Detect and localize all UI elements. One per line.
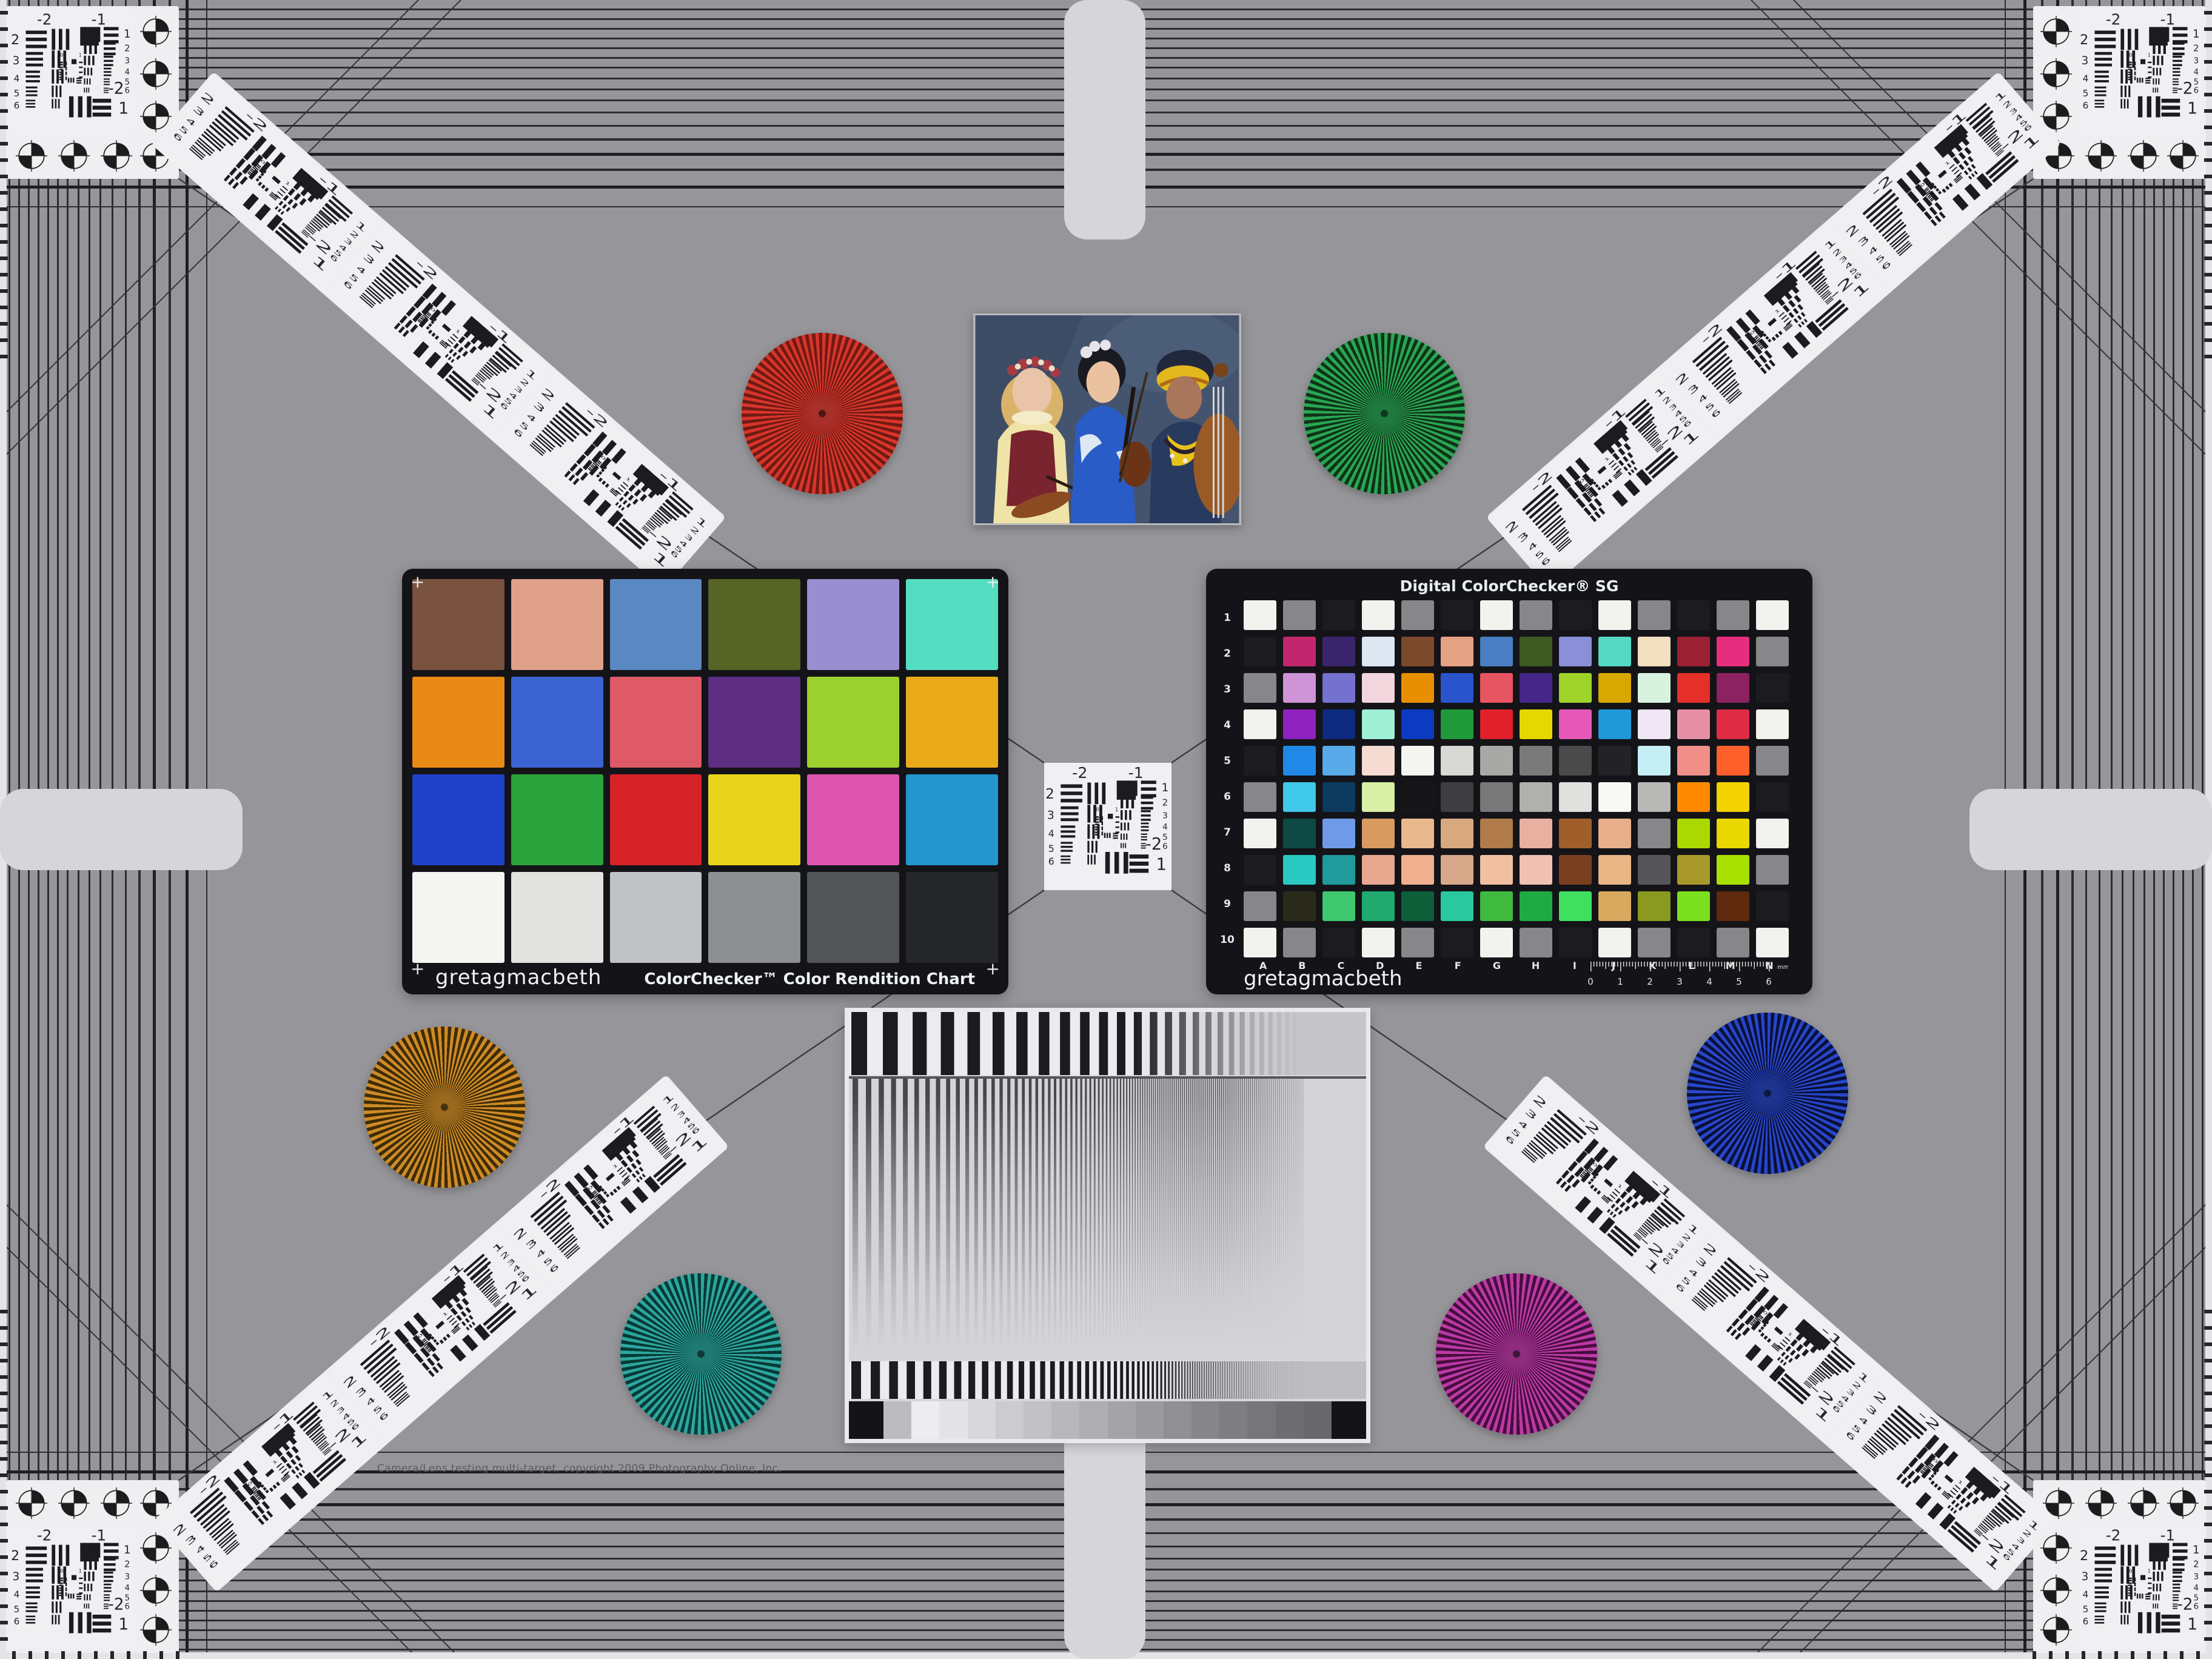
center-usaf-chart [1044, 763, 1171, 890]
sg-patch [1559, 637, 1592, 666]
sg-patch [1441, 746, 1473, 776]
sg-patch [1362, 928, 1395, 957]
sg-patch [1480, 709, 1513, 739]
sg-ruler-number: 1 [1617, 976, 1623, 987]
sg-patch [1638, 709, 1671, 739]
sg-patch [1756, 855, 1789, 885]
sg-patch [1559, 600, 1592, 630]
sg-patch [1559, 746, 1592, 776]
sg-patch [1441, 855, 1473, 885]
sg-patch [1677, 746, 1710, 776]
sg-patch [1638, 673, 1671, 703]
sg-patch [1638, 891, 1671, 921]
sg-patch [1638, 600, 1671, 630]
frequency-sweep-panel [845, 1008, 1370, 1443]
corner-fiducial-cluster [2033, 1480, 2206, 1653]
sg-patch [1717, 709, 1749, 739]
corner-plus-mark: + [986, 960, 1000, 977]
sg-patch [1244, 819, 1276, 848]
sg-column-label: E [1399, 960, 1438, 971]
gray-step [849, 1401, 883, 1439]
sg-patch [1717, 891, 1749, 921]
corner-fiducial-cluster [2033, 6, 2206, 179]
sg-patch [1322, 673, 1355, 703]
sg-patch [1480, 819, 1513, 848]
sg-patch [1717, 782, 1749, 812]
sg-patch [1677, 637, 1710, 666]
sg-patch [1520, 746, 1552, 776]
sg-patch [1480, 673, 1513, 703]
sg-patch [1283, 855, 1316, 885]
sg-patch [1638, 928, 1671, 957]
sg-patch [1598, 819, 1631, 848]
cc-patch [807, 774, 899, 865]
sg-patch [1598, 782, 1631, 812]
colorchecker-classic-panel: gretagmacbeth ColorChecker™ Color Rendit… [402, 569, 1008, 994]
sg-ruler-number: 0 [1588, 976, 1594, 987]
sg-patch [1717, 746, 1749, 776]
sg-patch [1559, 891, 1592, 921]
sg-patch [1322, 891, 1355, 921]
cc-patch [610, 579, 702, 670]
sg-patch [1677, 928, 1710, 957]
edge-marker-bottom [1064, 1419, 1145, 1659]
sg-patch [1677, 600, 1710, 630]
sg-patch [1638, 746, 1671, 776]
sg-column-label: H [1517, 960, 1555, 971]
sg-patch [1401, 709, 1434, 739]
edge-marker-left [0, 789, 243, 870]
cc-patch [511, 677, 603, 768]
cc-patch [906, 579, 998, 670]
sg-patch [1677, 891, 1710, 921]
cc-patch [610, 872, 702, 963]
cc-patch [511, 579, 603, 670]
cc-patch [807, 677, 899, 768]
sweep-field [849, 1079, 1366, 1359]
gray-step [883, 1401, 911, 1439]
sg-patch [1283, 819, 1316, 848]
chirp-top-fade [849, 1012, 1366, 1075]
sg-patch [1401, 637, 1434, 666]
sg-patch [1520, 709, 1552, 739]
sg-patch [1677, 819, 1710, 848]
sg-patch [1322, 819, 1355, 848]
sg-patch [1480, 891, 1513, 921]
sg-patch [1480, 855, 1513, 885]
sg-patch [1441, 782, 1473, 812]
sg-patch [1520, 600, 1552, 630]
corner-fiducial-cluster [6, 6, 179, 179]
sg-patch [1322, 637, 1355, 666]
sg-patch [1322, 746, 1355, 776]
sg-patch [1677, 709, 1710, 739]
sg-patch [1401, 746, 1434, 776]
corner-plus-mark: + [411, 960, 424, 977]
gray-step [1024, 1401, 1051, 1439]
colorchecker-brand: gretagmacbeth [435, 965, 602, 990]
sg-patch [1322, 928, 1355, 957]
gray-step [1136, 1401, 1164, 1439]
gray-step [1247, 1401, 1275, 1439]
sg-patch [1441, 819, 1473, 848]
sg-patch [1480, 782, 1513, 812]
sg-patch [1283, 709, 1316, 739]
sg-patch [1480, 637, 1513, 666]
cc-patch [906, 774, 998, 865]
sg-patch [1598, 891, 1631, 921]
sg-patch [1598, 600, 1631, 630]
sg-patch [1322, 709, 1355, 739]
sg-patch [1244, 600, 1276, 630]
sg-patch [1480, 746, 1513, 776]
sg-patch [1441, 928, 1473, 957]
sg-column-label: F [1438, 960, 1477, 971]
colorchecker-caption: gretagmacbeth ColorChecker™ Color Rendit… [402, 965, 1008, 990]
resolution-strip [151, 72, 726, 589]
sg-patch [1244, 782, 1276, 812]
sg-patch [1480, 928, 1513, 957]
cc-patch [511, 872, 603, 963]
sg-patch [1638, 782, 1671, 812]
cc-patch [412, 579, 504, 670]
sg-row-label: 6 [1217, 779, 1238, 815]
sg-patch [1244, 928, 1276, 957]
sg-patch [1717, 600, 1749, 630]
sg-patch [1362, 709, 1395, 739]
sg-patch [1362, 673, 1395, 703]
sg-patch [1362, 819, 1395, 848]
cc-patch [610, 677, 702, 768]
sg-row-label: 10 [1217, 922, 1238, 957]
sg-patch [1598, 637, 1631, 666]
sg-ruler-number: 2 [1647, 976, 1653, 987]
sg-patch [1362, 637, 1395, 666]
sg-patch [1756, 709, 1789, 739]
sg-patch [1677, 855, 1710, 885]
sg-patch [1362, 746, 1395, 776]
sg-patch [1322, 855, 1355, 885]
cc-patch [708, 774, 800, 865]
sg-ruler-number: 5 [1736, 976, 1742, 987]
sg-patch [1244, 891, 1276, 921]
sg-patch [1401, 928, 1434, 957]
cc-patch [906, 872, 998, 963]
sg-patch [1244, 855, 1276, 885]
sg-patch [1401, 600, 1434, 630]
siemens-star-teal [620, 1273, 782, 1435]
sweep-fade-horizontal [849, 1079, 1366, 1359]
sg-patch [1717, 637, 1749, 666]
sg-row-labels: 12345678910 [1217, 600, 1238, 957]
gray-step [1079, 1401, 1107, 1439]
edge-marker-top [1064, 0, 1145, 240]
sg-patch [1520, 637, 1552, 666]
sg-patch [1283, 637, 1316, 666]
sg-patch [1441, 600, 1473, 630]
sg-row-label: 9 [1217, 886, 1238, 922]
sg-patch [1322, 600, 1355, 630]
sg-patch [1401, 782, 1434, 812]
sg-patch [1520, 891, 1552, 921]
sg-patch [1322, 782, 1355, 812]
sg-patch [1283, 673, 1316, 703]
siemens-star-orange [364, 1027, 525, 1188]
gray-step [939, 1401, 967, 1439]
gray-step [1219, 1401, 1247, 1439]
sg-patch [1559, 928, 1592, 957]
sg-patch [1401, 891, 1434, 921]
sg-patch [1362, 891, 1395, 921]
gray-step [1304, 1401, 1332, 1439]
corner-plus-mark: + [411, 574, 424, 591]
sg-patch [1244, 709, 1276, 739]
gray-step [996, 1401, 1024, 1439]
resolution-strip [1486, 72, 2062, 589]
cc-patch [807, 872, 899, 963]
sg-patch [1598, 746, 1631, 776]
sg-patch [1520, 855, 1552, 885]
colorchecker-grid [412, 579, 998, 963]
sg-patch [1559, 782, 1592, 812]
sg-patch [1756, 928, 1789, 957]
sg-patch [1520, 782, 1552, 812]
colorchecker-title: ColorChecker™ Color Rendition Chart [644, 970, 975, 988]
sg-ruler-number: 4 [1706, 976, 1712, 987]
sg-patch [1283, 891, 1316, 921]
cc-patch [708, 872, 800, 963]
test-target-photo: -2-123456123456-2101 [0, 0, 2212, 1659]
sg-patch [1756, 819, 1789, 848]
sg-patch [1756, 891, 1789, 921]
sg-patch [1638, 637, 1671, 666]
siemens-star-magenta [1436, 1273, 1597, 1435]
sg-grid [1244, 600, 1789, 957]
sg-patch [1756, 782, 1789, 812]
sg-patch [1283, 746, 1316, 776]
sg-patch [1638, 855, 1671, 885]
sg-patch [1362, 782, 1395, 812]
gray-step [968, 1401, 996, 1439]
sg-row-label: 8 [1217, 850, 1238, 886]
sg-row-label: 4 [1217, 708, 1238, 743]
gray-step [1164, 1401, 1191, 1439]
sg-patch [1756, 637, 1789, 666]
colorchecker-sg-panel: Digital ColorChecker® SG 12345678910 ABC… [1206, 569, 1812, 994]
sg-title: Digital ColorChecker® SG [1206, 577, 1812, 595]
sg-patch [1401, 819, 1434, 848]
sweep-inner [849, 1012, 1366, 1439]
sg-patch [1283, 600, 1316, 630]
gray-step [1332, 1401, 1366, 1439]
sg-patch [1441, 673, 1473, 703]
sg-patch [1362, 600, 1395, 630]
sg-patch [1480, 600, 1513, 630]
sg-patch [1283, 928, 1316, 957]
sg-ruler: 0123456mm [1588, 960, 1788, 988]
gray-step [1276, 1401, 1304, 1439]
cc-patch [906, 677, 998, 768]
sg-column-label: G [1477, 960, 1516, 971]
sg-patch [1756, 673, 1789, 703]
sg-row-label: 2 [1217, 636, 1238, 672]
cc-patch [708, 677, 800, 768]
sg-patch [1362, 855, 1395, 885]
gray-step [1051, 1401, 1079, 1439]
sg-patch [1441, 637, 1473, 666]
sg-patch [1559, 819, 1592, 848]
siemens-star-green [1304, 333, 1465, 494]
chirp-low-fade [849, 1361, 1366, 1399]
sg-patch [1283, 782, 1316, 812]
cc-patch [412, 677, 504, 768]
sg-patch [1717, 855, 1749, 885]
siemens-star-red [742, 333, 903, 494]
sg-patch [1638, 819, 1671, 848]
sg-row-label: 3 [1217, 672, 1238, 708]
cc-patch [708, 579, 800, 670]
sg-patch [1598, 855, 1631, 885]
cc-patch [412, 872, 504, 963]
sg-patch [1401, 855, 1434, 885]
sg-row-label: 7 [1217, 814, 1238, 850]
gray-step [1108, 1401, 1136, 1439]
sg-patch [1401, 673, 1434, 703]
photo-three-musicians [973, 313, 1241, 525]
edge-marker-right [1969, 789, 2212, 870]
sg-patch [1559, 855, 1592, 885]
sg-patch [1244, 673, 1276, 703]
sg-patch [1717, 673, 1749, 703]
sg-patch [1756, 746, 1789, 776]
gray-step [911, 1401, 939, 1439]
sg-patch [1520, 819, 1552, 848]
copyright-text: Camera/Lens testing multi-target, copyri… [377, 1463, 782, 1475]
corner-fiducial-cluster [6, 1480, 179, 1653]
sg-patch [1756, 600, 1789, 630]
sg-patch [1598, 673, 1631, 703]
cc-patch [807, 579, 899, 670]
sg-patch [1598, 709, 1631, 739]
sg-patch [1520, 673, 1552, 703]
cc-patch [610, 774, 702, 865]
sg-row-label: 5 [1217, 743, 1238, 779]
sg-patch [1441, 891, 1473, 921]
siemens-star-blue [1687, 1013, 1848, 1174]
sg-patch [1598, 928, 1631, 957]
sg-ruler-unit: mm [1777, 964, 1788, 971]
sg-patch [1244, 746, 1276, 776]
sg-ruler-number: 6 [1766, 976, 1772, 987]
grayscale-step-wedge [849, 1401, 1366, 1439]
sg-patch [1717, 928, 1749, 957]
cc-patch [412, 774, 504, 865]
sg-patch [1717, 819, 1749, 848]
sg-ruler-number: 3 [1677, 976, 1683, 987]
center-resolution-chart [1044, 763, 1171, 890]
sg-patch [1677, 782, 1710, 812]
sg-patch [1677, 673, 1710, 703]
sg-brand: gretagmacbeth [1244, 967, 1403, 991]
sg-patch [1520, 928, 1552, 957]
cc-patch [511, 774, 603, 865]
sg-patch [1244, 637, 1276, 666]
sg-patch [1441, 709, 1473, 739]
sg-row-label: 1 [1217, 600, 1238, 636]
gray-step [1191, 1401, 1219, 1439]
corner-plus-mark: + [986, 574, 1000, 591]
sg-patch [1559, 709, 1592, 739]
sg-patch [1559, 673, 1592, 703]
